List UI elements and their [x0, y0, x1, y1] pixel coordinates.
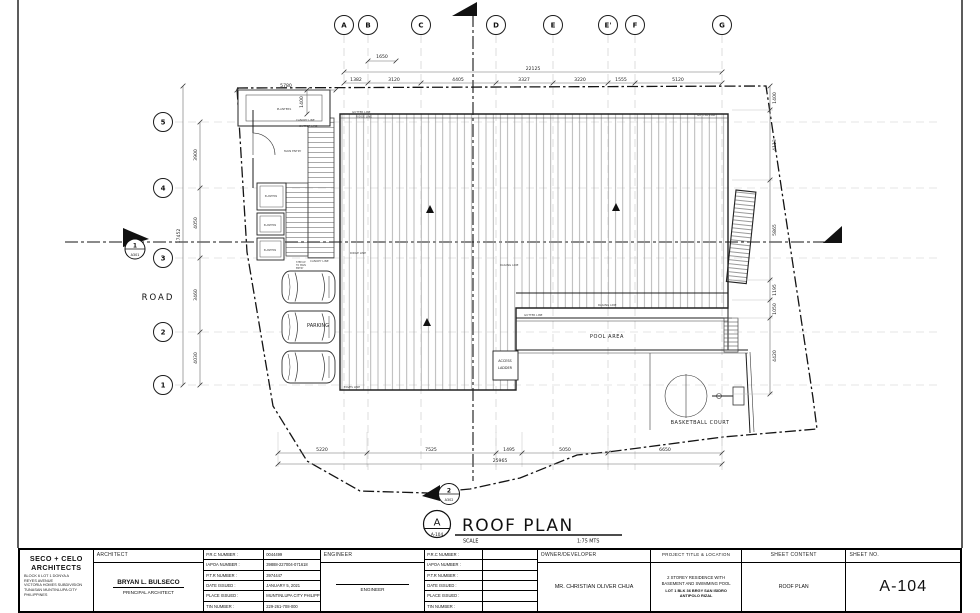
- tb-architect-fields: P.R.C NUMBER :0044499 IAPOA NUMBER :3988…: [204, 550, 321, 611]
- grid-bubbles-left: 5 4 3 2 1: [154, 113, 173, 395]
- grid-label: 2: [161, 329, 166, 337]
- planter-label: PLANTERS: [264, 224, 277, 227]
- basketball-court-label: BASKETBALL COURT: [671, 420, 730, 426]
- drawing-sheet: PLANTERS MAIN ENTRY PLANTERS PLANTERS PL…: [0, 0, 980, 613]
- drawing-title: A A-104 ROOF PLAN SCALE 1:75 MTS: [424, 511, 623, 545]
- tb-sheet-no: SHEET NO. A-104: [846, 550, 960, 611]
- dim-value: 4030: [193, 352, 199, 364]
- dim-value: 1555: [615, 77, 627, 83]
- roof: [340, 114, 728, 390]
- section-flag-right-icon: [823, 226, 842, 243]
- pool-area: POOL AREA: [516, 308, 748, 353]
- title-bubble-letter: A: [434, 518, 441, 529]
- dim-value: 5220: [316, 447, 328, 453]
- tb-engineer: ENGINEER ENGINEER: [321, 550, 426, 611]
- railing-line-label: RAILING LINE: [598, 303, 617, 307]
- access-ladder-label: LADDER: [498, 366, 513, 370]
- dim-value: 4405: [452, 77, 464, 83]
- scale-label: SCALE: [463, 539, 478, 545]
- dimensions-bottom: 5220 7525 1495 5050 6650 25965: [276, 432, 725, 467]
- grid-label: F: [633, 22, 638, 30]
- grid-label: G: [719, 22, 725, 30]
- tb-engineer-fields: P.R.C NUMBER : IAPOA NUMBER : P.T.R NUMB…: [425, 550, 538, 611]
- title-bubble-sheet: A-104: [431, 532, 444, 537]
- dim-value: 6650: [659, 447, 671, 453]
- section-marker-2: 2 A302: [422, 484, 460, 505]
- dim-value: 1050: [772, 303, 778, 315]
- dim-value: 25965: [493, 458, 508, 464]
- grid-label: E: [551, 22, 556, 30]
- dim-value: 1400: [299, 96, 305, 108]
- tb-sheet-content: SHEET CONTENT ROOF PLAN: [742, 550, 847, 611]
- firm-address: BLOCK 6 LOT 1 DONYA A REYES AVENUE VICTO…: [20, 572, 93, 598]
- grid-label: 4: [161, 185, 166, 193]
- dim-value: 3120: [388, 77, 400, 83]
- engineer-role: ENGINEER: [361, 587, 385, 592]
- architect-header: ARCHITECT: [94, 550, 204, 563]
- grid-label: C: [418, 22, 423, 30]
- dim-value: 5120: [672, 77, 684, 83]
- grid-label: 5: [161, 119, 166, 127]
- grid-label: E': [605, 22, 612, 30]
- scale-value: 1:75 MTS: [577, 539, 599, 545]
- grid-label: D: [493, 22, 499, 30]
- planter-label: PLANTERS: [265, 195, 278, 198]
- right-stair: [726, 190, 756, 284]
- dim-value: 22125: [526, 66, 541, 72]
- basketball-court: BASKETBALL COURT: [650, 352, 754, 433]
- gutter-line-label: GUTTER LINE: [299, 124, 318, 128]
- section-number: 2: [447, 488, 451, 495]
- engineer-header: ENGINEER: [321, 550, 425, 563]
- section-sheet: A301: [131, 253, 140, 257]
- gutter-line-label: GUTTER LINE: [697, 113, 716, 117]
- tb-architect: ARCHITECT BRYAN L. BULSECO PRINCIPAL ARC…: [94, 550, 205, 611]
- canopy-line-label: CANOPY LINE: [310, 259, 329, 263]
- sheet-no-header: SHEET NO.: [846, 550, 960, 563]
- access-ladder: ACCESS LADDER: [493, 351, 518, 380]
- section-sheet: A302: [445, 498, 454, 502]
- tb-firm: SECO + CELO ARCHITECTS BLOCK 6 LOT 1 DON…: [20, 550, 94, 611]
- project-header: PROJECT TITLE & LOCATION: [651, 550, 741, 563]
- grid-bubbles-top: A B C D E E' F G: [335, 16, 732, 35]
- car-icon: [282, 271, 335, 303]
- dim-value: 4420: [772, 350, 778, 362]
- planter-label: PLANTERS: [264, 249, 277, 252]
- section-marker-1: 1 A301: [123, 228, 149, 259]
- architect-name: BRYAN L. BULSECO: [113, 579, 183, 588]
- dim-value: 3327: [518, 77, 530, 83]
- backboard-icon: [733, 387, 744, 405]
- parking-area: PARKING: [282, 271, 335, 383]
- dim-value: 3900: [193, 149, 199, 161]
- dim-value: 3220: [574, 77, 586, 83]
- main-entry-label: MAIN ENTRY: [284, 149, 301, 153]
- gutter-line-label: GUTTER LINE: [524, 313, 543, 317]
- step-up-label: ENTRY: [296, 267, 304, 270]
- sheet-content-header: SHEET CONTENT: [742, 550, 846, 563]
- tb-project: PROJECT TITLE & LOCATION 2 STOREY RESIDE…: [651, 550, 742, 611]
- pool-area-label: POOL AREA: [590, 334, 624, 340]
- dim-value: 1382: [350, 77, 362, 83]
- dimensions-left: 3900 4050 3460 4030 17452: [176, 84, 202, 388]
- canopy-line-label: CANOPY LINE: [296, 118, 315, 122]
- north-flag-icon: [452, 2, 477, 16]
- dim-value: 4113: [772, 139, 778, 151]
- planter-label: PLANTERS: [277, 107, 292, 111]
- firm-name: SECO + CELO ARCHITECTS: [20, 554, 93, 572]
- gutter-line-label: GUTTER LINE: [352, 110, 371, 114]
- dim-value: 1400: [772, 92, 778, 104]
- dim-value: 1650: [376, 54, 388, 60]
- eaves-line-label: EAVES LINE: [344, 385, 360, 389]
- dim-value: 5050: [559, 447, 571, 453]
- dim-value: 1195: [772, 284, 778, 296]
- dim-value: 4050: [193, 217, 199, 229]
- dim-value: 1495: [503, 447, 515, 453]
- planter-stack: PLANTERS PLANTERS PLANTERS: [257, 183, 286, 260]
- ridge-line-label: RIDGE LINE: [350, 251, 366, 255]
- dim-value: 17452: [176, 229, 182, 244]
- access-ladder-label: ACCESS: [498, 359, 511, 363]
- owner-name: MR. CHRISTIAN OLIVER CHUA: [555, 584, 633, 590]
- grid-label: A: [341, 22, 347, 30]
- sheet-content-value: ROOF PLAN: [779, 584, 809, 590]
- sheet-no-value: A-104: [879, 578, 927, 596]
- drawing-title-text: ROOF PLAN: [462, 516, 574, 536]
- grid-label: B: [365, 22, 370, 30]
- engineer-signature-line: [336, 583, 408, 585]
- parking-label: PARKING: [307, 323, 329, 329]
- road-label: ROAD: [142, 293, 175, 303]
- grid-label: 3: [161, 255, 166, 263]
- ridge-line-label: RIDGE LINE: [356, 115, 372, 119]
- dim-value: 5865: [772, 224, 778, 236]
- canopy-stairs: [286, 118, 334, 258]
- car-icon: [282, 351, 335, 383]
- dim-value: 3460: [193, 289, 199, 301]
- architect-role: PRINCIPAL ARCHITECT: [123, 590, 174, 595]
- grid-label: 1: [161, 382, 166, 390]
- title-block: SECO + CELO ARCHITECTS BLOCK 6 LOT 1 DON…: [18, 548, 962, 613]
- dim-value: 5780: [280, 83, 292, 89]
- owner-header: OWNER/DEVELOPER: [538, 550, 651, 563]
- dim-value: 7525: [425, 447, 437, 453]
- section-number: 1: [133, 243, 137, 250]
- railing-line-label: RAILING LINE: [500, 263, 519, 267]
- tb-owner: OWNER/DEVELOPER MR. CHRISTIAN OLIVER CHU…: [538, 550, 652, 611]
- roof-plan-drawing: PLANTERS MAIN ENTRY PLANTERS PLANTERS PL…: [0, 0, 980, 548]
